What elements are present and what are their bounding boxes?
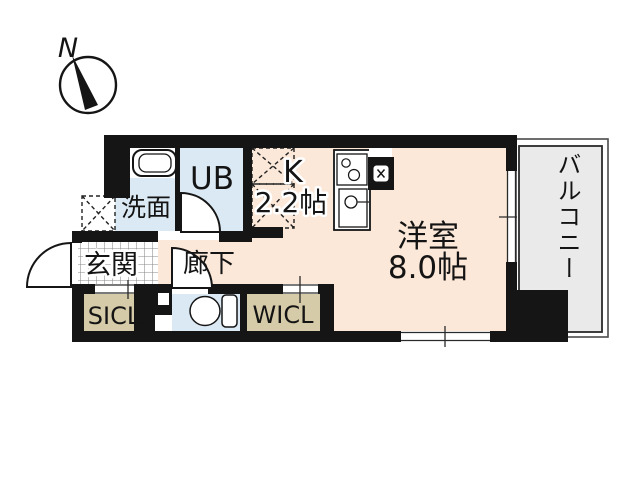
compass-north-label: N — [58, 33, 78, 64]
walk-in-closet-label: WICL — [253, 301, 315, 329]
wall-segment — [250, 227, 283, 238]
floorplan-drawing: 洗面 UB K 2.2帖 廊下 玄関 SICL WICL 洋室 8.0帖 バルコ… — [0, 0, 640, 480]
kitchen-counter-fixture — [334, 150, 371, 230]
wall-niche — [369, 148, 392, 157]
wall-segment — [82, 231, 158, 242]
wall-segment — [490, 331, 517, 342]
kitchen-sink-icon — [339, 189, 371, 227]
floorplan-page: 洗面 UB K 2.2帖 廊下 玄関 SICL WICL 洋室 8.0帖 バルコ… — [0, 0, 640, 480]
wall-segment — [72, 287, 84, 340]
toilet-fixture — [190, 295, 237, 327]
wall-segment — [320, 284, 334, 335]
kitchen-size-label: 2.2帖 — [255, 186, 328, 219]
wall-segment — [72, 231, 82, 243]
wall-segment — [104, 135, 517, 148]
wall-corner-block — [513, 290, 568, 342]
stove-icon — [337, 154, 367, 185]
wall-segment — [506, 148, 517, 171]
wall-segment — [72, 331, 401, 342]
pipe-space-notch — [158, 293, 169, 305]
wall-segment — [72, 284, 95, 294]
wall-segment — [175, 148, 180, 231]
wall-segment — [240, 284, 247, 335]
unit-bath-label: UB — [190, 161, 234, 197]
kitchen-label: K — [283, 155, 304, 190]
hallway-label: 廊下 — [183, 249, 235, 279]
western-room-size-label: 8.0帖 — [388, 250, 468, 286]
entrance-label: 玄関 — [84, 250, 138, 281]
shoe-closet-label: SICL — [88, 302, 141, 330]
wall-segment — [104, 135, 130, 198]
washbasin-fixture — [133, 150, 176, 176]
washroom-label: 洗面 — [121, 193, 171, 222]
balcony-label: バルコニー — [553, 152, 581, 282]
